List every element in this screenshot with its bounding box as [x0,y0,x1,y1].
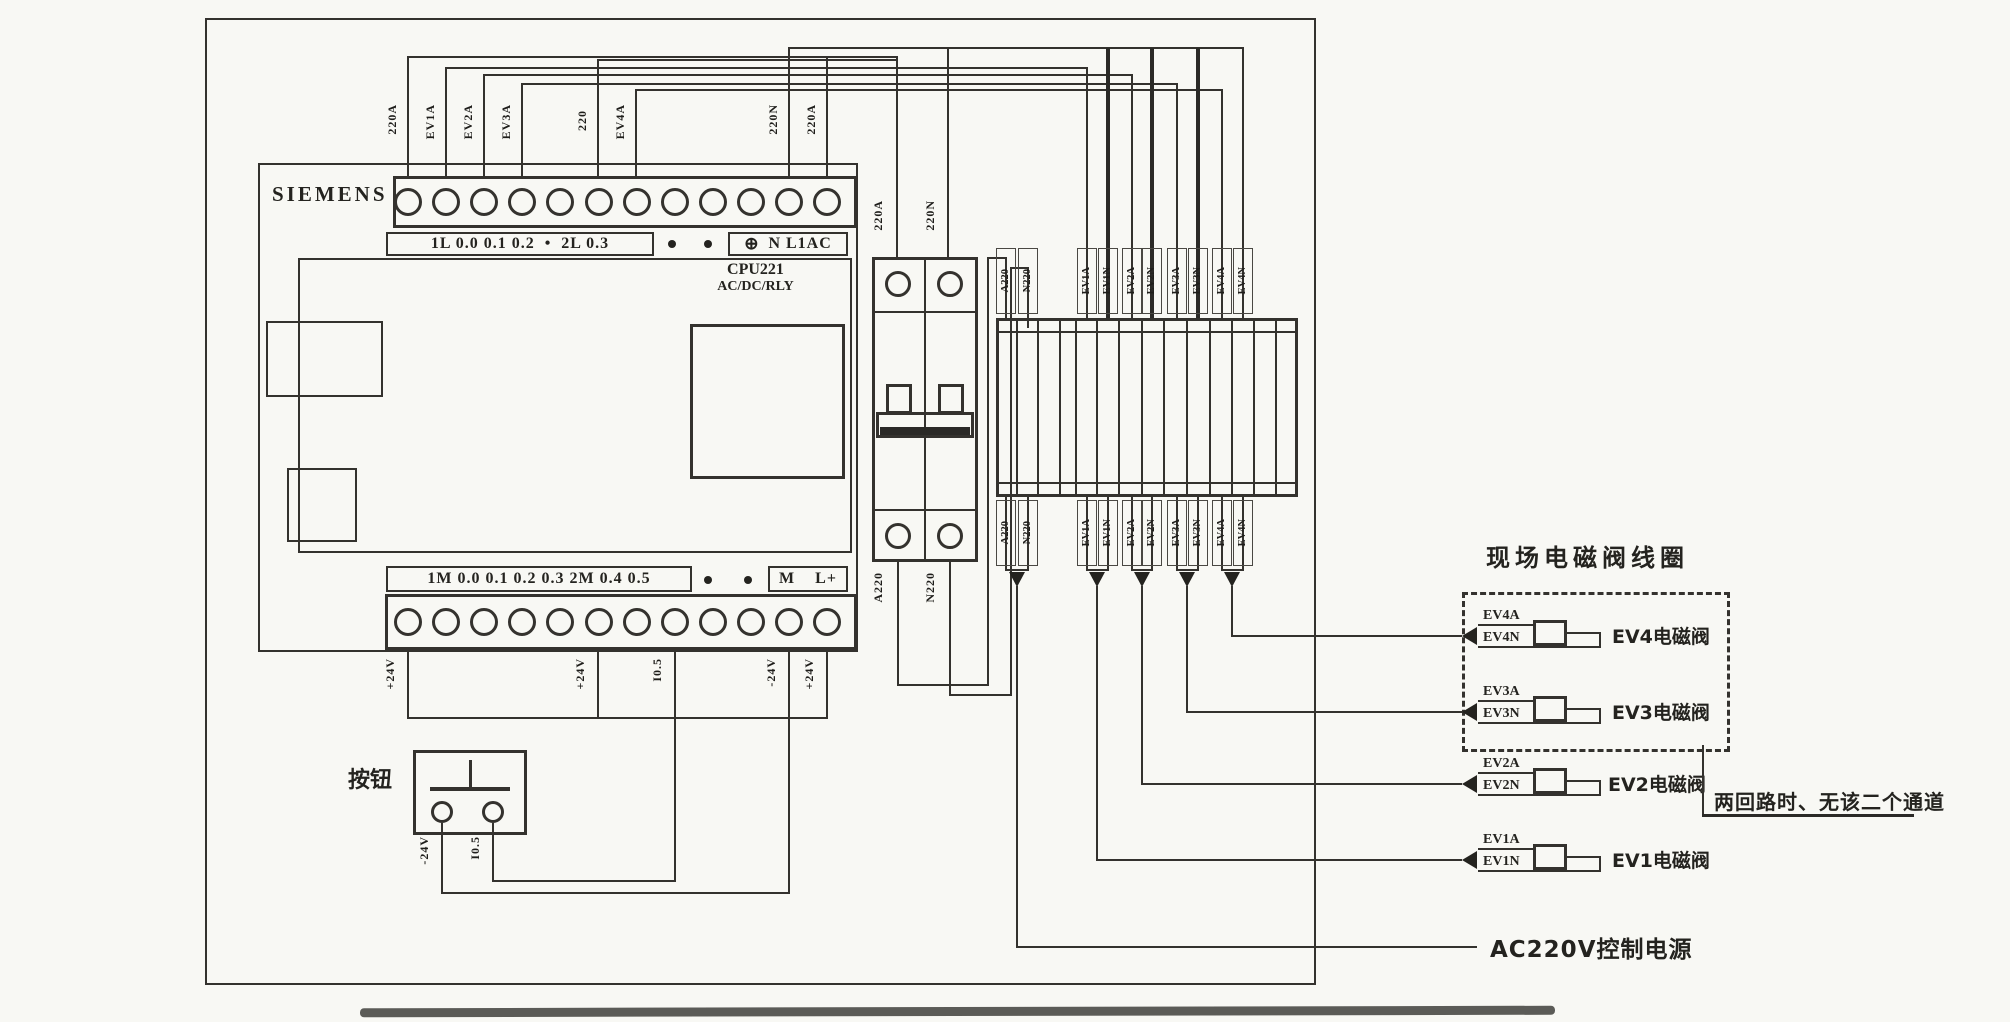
wire-label: 220N [767,104,779,135]
note-text: 两回路时、无该二个通道 [1714,786,1945,815]
wire [1016,586,1018,947]
wire [1131,569,1153,571]
wire [897,562,899,685]
wire-220a-bus [407,56,898,58]
plc-port-left2 [287,468,357,542]
plc-wiring-diagram: 220A EV1A EV2A EV3A 220 EV4A 220N 220A S… [0,0,2010,1022]
plc-model: CPU221 AC/DC/RLY [693,261,818,295]
strip-top-label: EV4N [1233,248,1253,314]
dot [704,576,712,584]
plc-top-label-row: 1L 0.0 0.1 0.2 • 2L 0.3 [386,232,654,256]
breaker-line [872,509,978,511]
plc-bottom-label-row-right: M L+ [768,566,848,592]
wire-label: EV3A [500,104,512,139]
earth-icon: ⊕ [744,234,759,254]
terminal [737,188,765,216]
wire-label: I0.5 [651,658,663,682]
wire [1478,794,1601,796]
valve-wire-label: EV1A [1483,832,1520,848]
wire [1086,569,1109,571]
wire-label: +24V [574,658,586,690]
wire [1567,708,1601,710]
wire [1231,635,1462,637]
breaker-line [872,311,978,313]
plc-brand: SIEMENS [272,182,388,207]
terminal [470,188,498,216]
terminal [775,608,803,636]
cable-arrow-icon [1089,572,1105,587]
wire [1478,646,1601,648]
strip-top-label: EV4A [1212,248,1232,314]
wire [1186,711,1462,713]
wire-label: 220A [805,104,817,135]
strip-top-label: EV3N [1188,248,1208,314]
breaker-terminal [885,523,911,549]
strip-bottom-label: A220 [996,500,1016,566]
wire-label: EV2A [462,104,474,139]
wire [597,60,599,176]
wire [1567,856,1601,858]
terminal [661,188,689,216]
wire-label: N220 [924,572,936,603]
strip-top-label: N220 [1018,248,1038,314]
valve-name: EV3电磁阀 [1612,698,1710,725]
strip-divider [1016,318,1018,497]
wire [1176,569,1199,571]
ac-terminal-label: N L1AC [768,235,831,253]
wire [635,89,1223,91]
wire [1478,624,1534,626]
breaker-handle-left[interactable] [886,384,912,414]
field-title: 现场电磁阀线圈 [1486,538,1689,573]
terminal [508,188,536,216]
wire [407,650,409,718]
plc-top-label-row-right: ⊕ N L1AC [728,232,848,256]
wire [949,562,951,695]
wire [445,68,447,176]
wire-label: A220 [872,572,884,603]
valve-wire-label: EV4A [1483,608,1520,624]
wire [788,650,790,893]
wire [1567,780,1601,782]
strip-divider [1037,318,1039,497]
strip-bottom-label: EV1A [1077,500,1097,566]
wire [597,650,599,718]
valve-coil [1533,620,1567,646]
button-label: 按钮 [348,762,392,794]
wire [674,650,676,881]
wire [1141,586,1143,784]
scan-artifact [360,1006,1555,1018]
button-contact-bar [430,787,510,791]
cable-arrow-icon [1134,572,1150,587]
terminal [737,608,765,636]
breaker-terminal [937,523,963,549]
button-stem [469,760,472,789]
plc-model-line1: CPU221 [693,261,818,279]
valve-wire-label: EV3N [1483,706,1520,722]
terminal [394,188,422,216]
strip-divider [1075,318,1077,497]
strip-top-label: EV2N [1142,248,1162,314]
wire [1221,569,1244,571]
cable-arrow-icon [1462,703,1477,721]
valve-name: EV1电磁阀 [1612,846,1710,873]
valve-coil [1533,768,1567,794]
plc-display-window [690,324,845,479]
plc-model-line2: AC/DC/RLY [693,279,818,295]
terminal [699,608,727,636]
strip-divider [1209,318,1211,497]
wire [483,74,1133,76]
breaker-handle-fill [880,427,970,435]
wire-label: -24V [765,658,777,687]
strip-divider [1186,318,1188,497]
cable-arrow-icon [1462,775,1477,793]
terminal [394,608,422,636]
cable-arrow-icon [1224,572,1240,587]
cable-arrow-icon [1462,851,1477,869]
cable-arrow-icon [1009,572,1025,587]
terminal [623,608,651,636]
terminal [546,608,574,636]
wire [521,83,1178,85]
wire [1567,632,1601,634]
wire [492,880,676,882]
terminal [813,188,841,216]
terminal [470,608,498,636]
wire [445,67,1088,69]
valve-coil [1533,844,1567,870]
valve-wire-label: EV2A [1483,756,1520,772]
wire [441,823,443,893]
wire-label: EV4A [614,104,626,139]
valve-wire-label: EV1N [1483,854,1520,870]
breaker-terminal [937,271,963,297]
dot [668,240,676,248]
wire [947,48,949,257]
terminal [699,188,727,216]
power-label: AC220V控制电源 [1490,930,1693,964]
wire [441,892,790,894]
wire [492,823,494,881]
wire [1478,722,1601,724]
strip-divider [1231,318,1233,497]
strip-bottom-label: EV3A [1167,500,1187,566]
plc-port-left [266,321,383,397]
strip-bottom-label: EV1N [1098,500,1118,566]
wire-label: 220A [386,104,398,135]
terminal [585,188,613,216]
strip-bottom-label: EV2A [1122,500,1142,566]
terminal [432,188,460,216]
wire-label: -24V [418,836,430,865]
wire [1231,586,1233,636]
wire [1096,586,1098,860]
strip-bottom-label: EV2N [1142,500,1162,566]
wire [1478,848,1534,850]
strip-divider [1275,318,1277,497]
wire [897,684,989,686]
valve-wire-label: EV3A [1483,684,1520,700]
strip-bottom-label: EV3N [1188,500,1208,566]
strip-divider [1141,318,1143,497]
dot [744,576,752,584]
terminal [508,608,536,636]
wire [1096,859,1462,861]
wire [1478,870,1601,872]
note-bracket [1702,745,1704,816]
button-terminal [431,801,453,823]
wire-24v-rail [407,717,828,719]
terminal [813,608,841,636]
wire-label: +24V [803,658,815,690]
wire [1186,586,1188,712]
strip-divider [1163,318,1165,497]
strip-bottom-label: EV4N [1233,500,1253,566]
terminal [661,608,689,636]
wire [987,258,989,685]
wire-label: 220A [872,200,884,231]
terminal [775,188,803,216]
strip-divider [1118,318,1120,497]
terminal [585,608,613,636]
wire [1005,569,1029,571]
wire-label: I0.5 [469,836,481,860]
breaker-divider [924,257,926,562]
strip-divider [1059,318,1061,497]
button-terminal [482,801,504,823]
strip-top-label: A220 [996,248,1016,314]
wire [949,694,1012,696]
wire-label: +24V [384,658,396,690]
dot [704,240,712,248]
wire-label: EV1A [424,104,436,139]
strip-bottom-label: N220 [1018,500,1038,566]
wire [1141,783,1462,785]
strip-divider [1253,318,1255,497]
strip-top-label: EV3A [1167,248,1187,314]
cable-arrow-icon [1179,572,1195,587]
wire [407,57,409,176]
strip-bottom-label: EV4A [1212,500,1232,566]
valve-coil [1533,696,1567,722]
wire [896,57,898,257]
wire [1478,772,1534,774]
terminal [432,608,460,636]
wire-label: 220N [924,200,936,231]
wire [483,75,485,176]
strip-top-label: EV1A [1077,248,1097,314]
plc-bottom-label-row: 1M 0.0 0.1 0.2 0.3 2M 0.4 0.5 [386,566,692,592]
strip-top-label: EV2A [1122,248,1142,314]
valve-wire-label: EV4N [1483,630,1520,646]
valve-wire-label: EV2N [1483,778,1520,794]
wire [597,59,898,61]
wire [826,650,828,718]
wire [1016,946,1477,948]
cable-arrow-icon [1462,627,1477,645]
wire [1478,700,1534,702]
wire-label: 220 [576,110,588,131]
valve-name: EV4电磁阀 [1612,622,1710,649]
breaker-terminal [885,271,911,297]
strip-top-label: EV1N [1098,248,1118,314]
breaker-handle-right[interactable] [938,384,964,414]
terminal [623,188,651,216]
strip-divider [1096,318,1098,497]
wire-220n-bus [788,47,1244,49]
valve-name: EV2电磁阀 [1608,770,1706,797]
terminal [546,188,574,216]
